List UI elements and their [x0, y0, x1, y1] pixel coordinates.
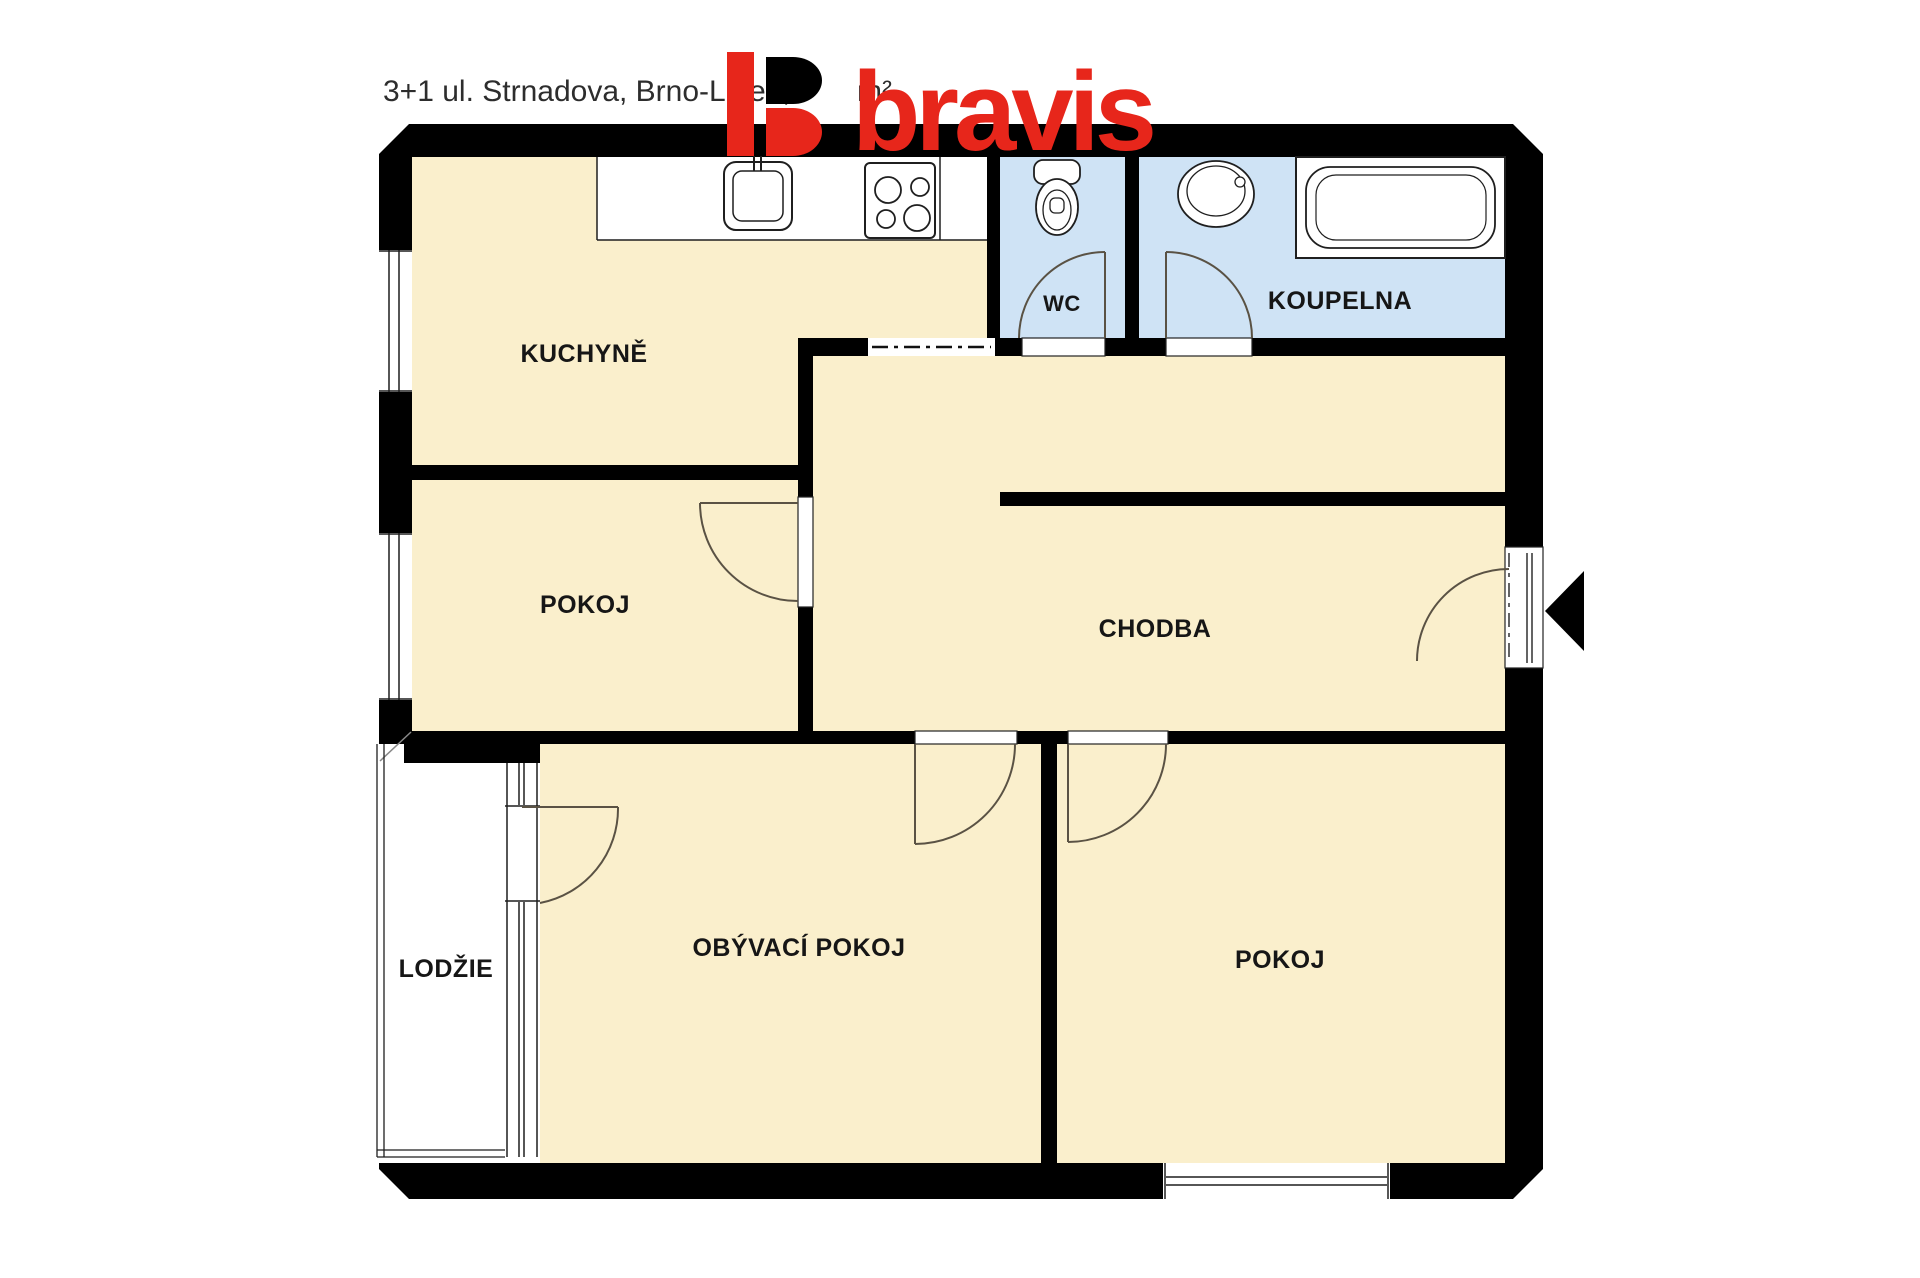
kitchen-window — [379, 250, 412, 392]
wall-kitchen-wc — [987, 157, 1000, 338]
wall-hallway-vert-lower — [798, 607, 813, 731]
loggia-floor — [383, 744, 505, 1150]
bravis-logo: bravis — [727, 49, 1153, 174]
room-left-door-opening — [798, 497, 813, 607]
logo-b-top-icon — [766, 57, 822, 104]
entrance-door-opening — [1505, 547, 1543, 668]
wall-wc-bathroom — [1125, 157, 1139, 338]
wall-hallway-vert-upper — [798, 342, 813, 497]
room-right-window — [1163, 1163, 1390, 1199]
wall-bottomrow-right — [1168, 731, 1505, 744]
wc-label: WC — [1043, 291, 1081, 316]
living-room-label: OBÝVACÍ POKOJ — [692, 932, 905, 962]
wall-right-lower — [1505, 668, 1543, 1199]
wall-living-roomright — [1041, 744, 1057, 1163]
bathroom-door-opening — [1166, 338, 1252, 356]
living-room-door-opening — [915, 731, 1017, 744]
room-left-window — [379, 533, 412, 700]
floor-plan-page: KUCHYNĚ WC KOUPELNA POKOJ CHODBA OBÝVACÍ… — [0, 0, 1920, 1278]
logo-wordmark: bravis — [852, 49, 1153, 174]
wall-under-bathroom — [1252, 338, 1505, 356]
wall-loggia-top — [404, 731, 540, 763]
hallway-floor — [813, 356, 1505, 731]
hallway-label: CHODBA — [1099, 615, 1212, 643]
entrance-arrow-icon — [1545, 571, 1584, 651]
room-left-label: POKOJ — [540, 591, 630, 619]
wc-door-opening — [1022, 338, 1105, 356]
kitchen-hallway-opening — [868, 338, 995, 356]
wall-hallway-divider — [1000, 492, 1505, 506]
stove-icon — [865, 163, 935, 238]
room-right-label: POKOJ — [1235, 946, 1325, 974]
room-right-door-opening — [1068, 731, 1168, 744]
loggia-window-wall — [505, 763, 540, 1157]
bathtub-icon — [1296, 157, 1505, 258]
kitchen-sink-icon — [724, 156, 792, 230]
logo-bar-icon — [727, 52, 754, 156]
floor-plan: KUCHYNĚ WC KOUPELNA POKOJ CHODBA OBÝVACÍ… — [0, 0, 1920, 1278]
wall-right-upper — [1505, 124, 1543, 547]
loggia-label: LODŽIE — [399, 953, 494, 983]
wall-under-wc-right — [1105, 338, 1166, 356]
bathroom-label: KOUPELNA — [1268, 287, 1412, 315]
kitchen-label: KUCHYNĚ — [520, 338, 647, 368]
logo-b-bottom-icon — [766, 108, 822, 156]
wall-kitchen-roomleft — [412, 465, 813, 480]
wall-bottomrow-mid — [1017, 731, 1068, 744]
bathroom-sink-icon — [1178, 161, 1254, 227]
